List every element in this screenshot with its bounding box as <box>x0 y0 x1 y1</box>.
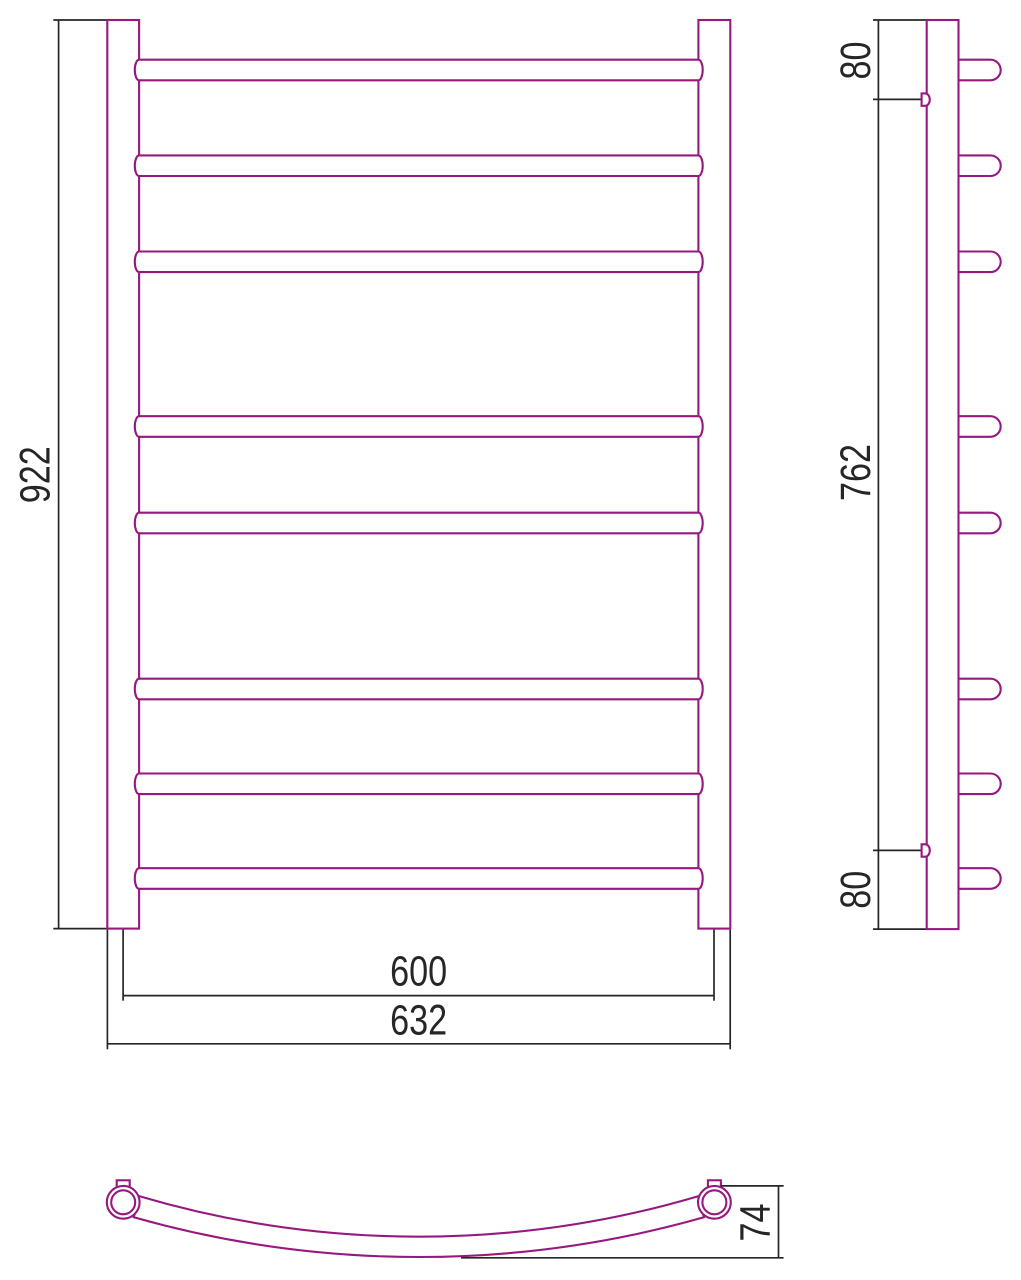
svg-text:600: 600 <box>390 948 447 996</box>
svg-text:922: 922 <box>12 446 60 503</box>
svg-text:74: 74 <box>732 1204 780 1242</box>
svg-text:762: 762 <box>832 444 880 501</box>
svg-text:80: 80 <box>832 871 880 909</box>
svg-text:632: 632 <box>390 996 447 1044</box>
svg-text:80: 80 <box>832 42 880 80</box>
